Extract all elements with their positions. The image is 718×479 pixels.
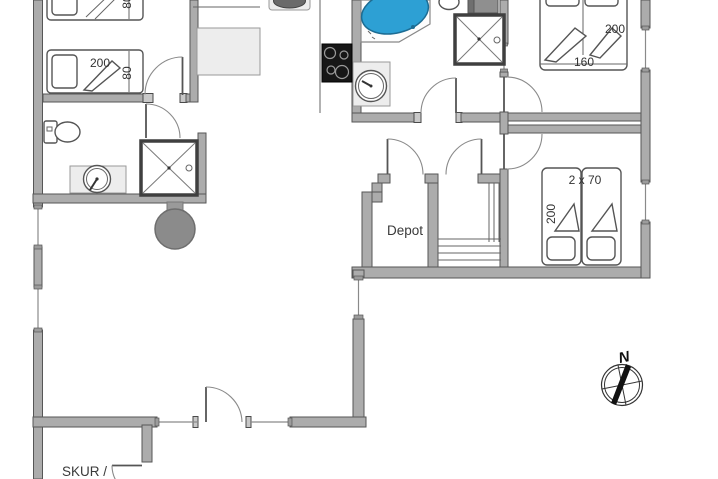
bed-pillow xyxy=(52,55,77,88)
bed-pillow xyxy=(52,0,77,15)
bed-pillow xyxy=(585,0,618,6)
skur-room: SKUR / xyxy=(62,464,107,479)
toilet-bowl xyxy=(55,122,80,142)
depot-label: Depot xyxy=(387,223,423,238)
spa-bathroom xyxy=(353,0,504,106)
door-swing-arc xyxy=(421,78,456,113)
wall-segment xyxy=(641,222,650,278)
bedroom-bottom-right: 2 x 70 200 xyxy=(542,168,621,265)
window-cap xyxy=(288,418,292,426)
door-swing-arc xyxy=(446,139,482,175)
wall-segment xyxy=(352,267,650,278)
table xyxy=(197,28,260,75)
washing-machine-dot xyxy=(370,85,373,88)
bed-width-label: 80 xyxy=(120,66,134,80)
window-cap xyxy=(642,220,649,224)
wall-segment xyxy=(33,417,157,427)
wall-segment xyxy=(500,112,508,134)
wood-stove xyxy=(155,209,195,249)
wall-segment xyxy=(352,113,414,122)
door-swing-arc xyxy=(112,466,142,479)
wall-segment xyxy=(428,183,438,267)
shower-drain xyxy=(477,37,480,40)
window-cap xyxy=(642,180,649,184)
kitchen xyxy=(193,0,352,113)
window-cap xyxy=(642,26,649,30)
door-swing-arc xyxy=(388,139,424,175)
bed-length-label: 200 xyxy=(605,22,625,36)
wall-segment xyxy=(198,133,206,200)
bed-length-label: 200 xyxy=(544,204,558,224)
bed-size-label: 2 x 70 xyxy=(569,173,602,187)
window-cap xyxy=(34,328,42,332)
stair-steps xyxy=(438,239,501,260)
bed-pillow xyxy=(547,237,575,260)
door-bedroom-top-right xyxy=(504,77,542,112)
window-cap xyxy=(501,69,508,72)
wall-segment xyxy=(461,113,500,122)
window-cap xyxy=(34,245,42,249)
wall-segment xyxy=(43,94,143,102)
shelving-lines xyxy=(489,183,499,242)
bed-length-label: 200 xyxy=(90,56,110,70)
wall-segment xyxy=(142,425,152,462)
window-cap xyxy=(34,205,42,209)
wall-segment xyxy=(508,125,650,133)
bed-pillow xyxy=(587,237,615,260)
wall-segment xyxy=(34,330,43,479)
window-cap xyxy=(155,418,159,426)
wall-segment xyxy=(500,169,508,267)
door-bedroom-bottom-right xyxy=(504,134,542,169)
washbasin-drain xyxy=(95,177,98,180)
wall-segment xyxy=(34,247,42,287)
wardrobe-cabinet-door xyxy=(468,0,474,13)
door-swing-arc xyxy=(145,57,183,95)
door-swing-arc xyxy=(507,77,542,112)
bedroom-top-left: 200 80 80 xyxy=(47,0,143,93)
window-cap xyxy=(642,68,649,72)
window-cap xyxy=(354,276,363,280)
compass-north-label: N xyxy=(617,348,632,367)
hand-basin xyxy=(439,0,459,10)
compass-rose: N xyxy=(602,348,643,406)
bathroom-left xyxy=(44,121,197,249)
door-swing-arc xyxy=(146,104,180,138)
wall-segment xyxy=(508,113,650,121)
door-swing-arc xyxy=(507,134,542,169)
floor-plan: 200 80 80 xyxy=(0,0,718,479)
bedroom-top-right: 200 160 xyxy=(540,0,627,70)
wall-segment xyxy=(378,174,390,183)
depot-and-stair-room: Depot xyxy=(387,183,501,260)
door-depot xyxy=(388,139,424,175)
bed-width-label: 160 xyxy=(574,55,594,69)
wall-segment xyxy=(425,174,438,183)
door-bedroom-top-left xyxy=(145,57,183,95)
door-bathroom xyxy=(146,104,180,138)
wall-segment xyxy=(353,319,364,427)
door-swing-arc xyxy=(206,387,242,422)
wall-segment xyxy=(641,0,650,28)
door-post xyxy=(143,94,153,103)
door-stair-room xyxy=(446,139,482,175)
bed-width-label: 80 xyxy=(120,0,134,9)
wall-segment xyxy=(290,417,366,427)
wall-segment xyxy=(34,0,43,207)
compass-needle xyxy=(611,364,631,405)
wall-segment xyxy=(500,72,508,77)
skur-label: SKUR / xyxy=(62,464,107,479)
wall-segment xyxy=(641,70,650,182)
window-cap xyxy=(34,285,42,289)
wall-segment xyxy=(362,192,372,267)
bed-pillow xyxy=(546,0,579,6)
door-post xyxy=(414,113,421,123)
shower-drain xyxy=(167,166,170,169)
spa-drain xyxy=(411,25,415,29)
window-cap xyxy=(354,315,363,319)
door-spa-bathroom xyxy=(421,78,456,113)
door-terrace xyxy=(206,387,242,422)
door-skur xyxy=(112,466,142,479)
